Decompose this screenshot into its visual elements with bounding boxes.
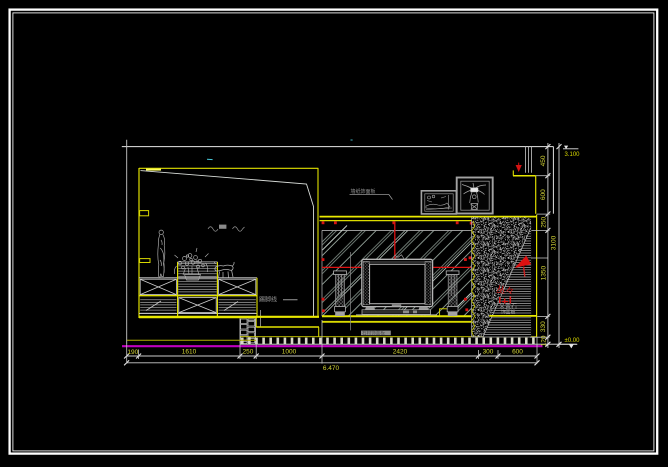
svg-text:330: 330 [540, 321, 547, 332]
svg-text:6.470: 6.470 [323, 365, 340, 372]
svg-text:1000: 1000 [282, 348, 297, 355]
svg-text:石材饰面板: 石材饰面板 [362, 330, 385, 337]
svg-text:米黄石: 米黄石 [499, 303, 517, 311]
svg-text:120: 120 [541, 335, 548, 346]
svg-text:300: 300 [483, 348, 494, 355]
svg-text:190: 190 [127, 349, 138, 356]
svg-text:600: 600 [540, 189, 547, 200]
svg-text:250: 250 [243, 348, 254, 355]
svg-text:饰面板: 饰面板 [501, 309, 516, 316]
svg-text:2420: 2420 [393, 348, 408, 355]
svg-text:3.100: 3.100 [565, 152, 581, 158]
svg-text:1610: 1610 [182, 348, 197, 355]
svg-text:600: 600 [512, 348, 523, 355]
svg-text:1350: 1350 [541, 265, 548, 280]
svg-text:±0.00: ±0.00 [565, 338, 581, 344]
svg-text:3100: 3100 [550, 235, 557, 250]
svg-text:250: 250 [540, 216, 547, 227]
svg-text:踢脚线: 踢脚线 [259, 296, 277, 304]
svg-text:450: 450 [540, 155, 547, 166]
